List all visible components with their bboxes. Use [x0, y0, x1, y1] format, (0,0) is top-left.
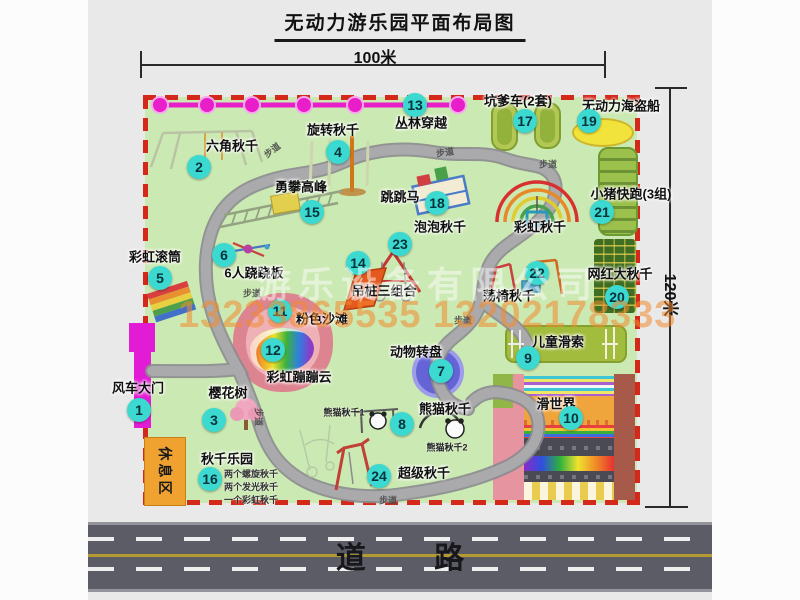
attraction-label-15: 勇攀高峰 [275, 177, 327, 196]
attraction-label-17: 坑爹车(2套) [484, 91, 552, 110]
attraction-marker-15: 15 [300, 200, 324, 224]
slide-world-area [490, 368, 637, 502]
walkway-label-7: 步道 [253, 408, 266, 426]
attraction-label-rainbow-swing: 彩虹秋千 [514, 217, 566, 236]
attraction-marker-19: 19 [577, 109, 601, 133]
attraction-label-3: 樱花树 [208, 383, 247, 402]
attraction-label-2: 六角秋千 [206, 136, 258, 155]
attraction-label-1: 风车大门 [112, 378, 164, 397]
width-tick-right [604, 51, 606, 78]
attraction-marker-1: 1 [127, 398, 151, 422]
swing-park-note-1: 两个螺旋秋千 [224, 467, 278, 480]
attraction-label-5: 彩虹滚筒 [129, 247, 181, 266]
attraction-marker-16: 16 [198, 467, 222, 491]
attraction-label-24: 超级秋千 [398, 463, 450, 482]
width-dimension-label: 100米 [354, 44, 397, 68]
attraction-marker-7: 7 [429, 359, 453, 383]
page-title: 无动力游乐园平面布局图 [274, 8, 525, 42]
rest-area-box: 休息区 [144, 437, 186, 506]
attraction-marker-24: 24 [367, 464, 391, 488]
road: 道 路 [88, 522, 712, 592]
attraction-marker-3: 3 [202, 408, 226, 432]
boundary-top [143, 95, 640, 100]
rest-area-label: 休息区 [155, 446, 175, 497]
panda-swing-sub-label-2: 熊猫秋千2 [426, 441, 467, 454]
attraction-marker-5: 5 [148, 266, 172, 290]
panda-swing-sub-label-1: 熊猫秋千1 [323, 406, 364, 419]
swing-park-note-2: 两个发光秋千 [224, 480, 278, 493]
height-tick-top [655, 87, 687, 89]
windmill-gate-top [129, 323, 155, 352]
attraction-label-23: 泡泡秋千 [414, 217, 466, 236]
swing-park-note-3: 一个彩虹秋千 [224, 493, 278, 506]
park-layout-map: 无动力游乐园平面布局图 100米 120米 休息区 [0, 0, 800, 600]
attraction-marker-10: 10 [559, 406, 583, 430]
walkway-label-2: 步道 [435, 144, 455, 159]
walkway-label-6: 步道 [379, 494, 397, 507]
attraction-marker-4: 4 [326, 140, 350, 164]
attraction-label-8: 熊猫秋千 [419, 399, 471, 418]
attraction-marker-18: 18 [425, 191, 449, 215]
walkway-label-3: 步道 [539, 158, 557, 171]
attraction-marker-9: 9 [516, 346, 540, 370]
attraction-marker-21: 21 [590, 200, 614, 224]
watermark-phone: 13233865535 13202178333 [178, 294, 677, 337]
attraction-label-7: 动物转盘 [390, 342, 442, 361]
road-label: 道 路 [306, 533, 494, 577]
attraction-marker-6: 6 [212, 243, 236, 267]
attraction-marker-13: 13 [403, 93, 427, 117]
attraction-label-16: 秋千乐园 [201, 449, 253, 468]
attraction-marker-8: 8 [390, 412, 414, 436]
attraction-marker-17: 17 [513, 109, 537, 133]
width-tick-left [140, 51, 142, 78]
attraction-label-18: 跳跳马 [380, 187, 419, 206]
height-tick-bottom [645, 506, 688, 508]
attraction-marker-2: 2 [187, 155, 211, 179]
attraction-label-12: 彩虹蹦蹦云 [266, 367, 331, 386]
attraction-marker-12: 12 [261, 338, 285, 362]
attraction-label-4: 旋转秋千 [307, 120, 359, 139]
attraction-marker-23: 23 [388, 232, 412, 256]
